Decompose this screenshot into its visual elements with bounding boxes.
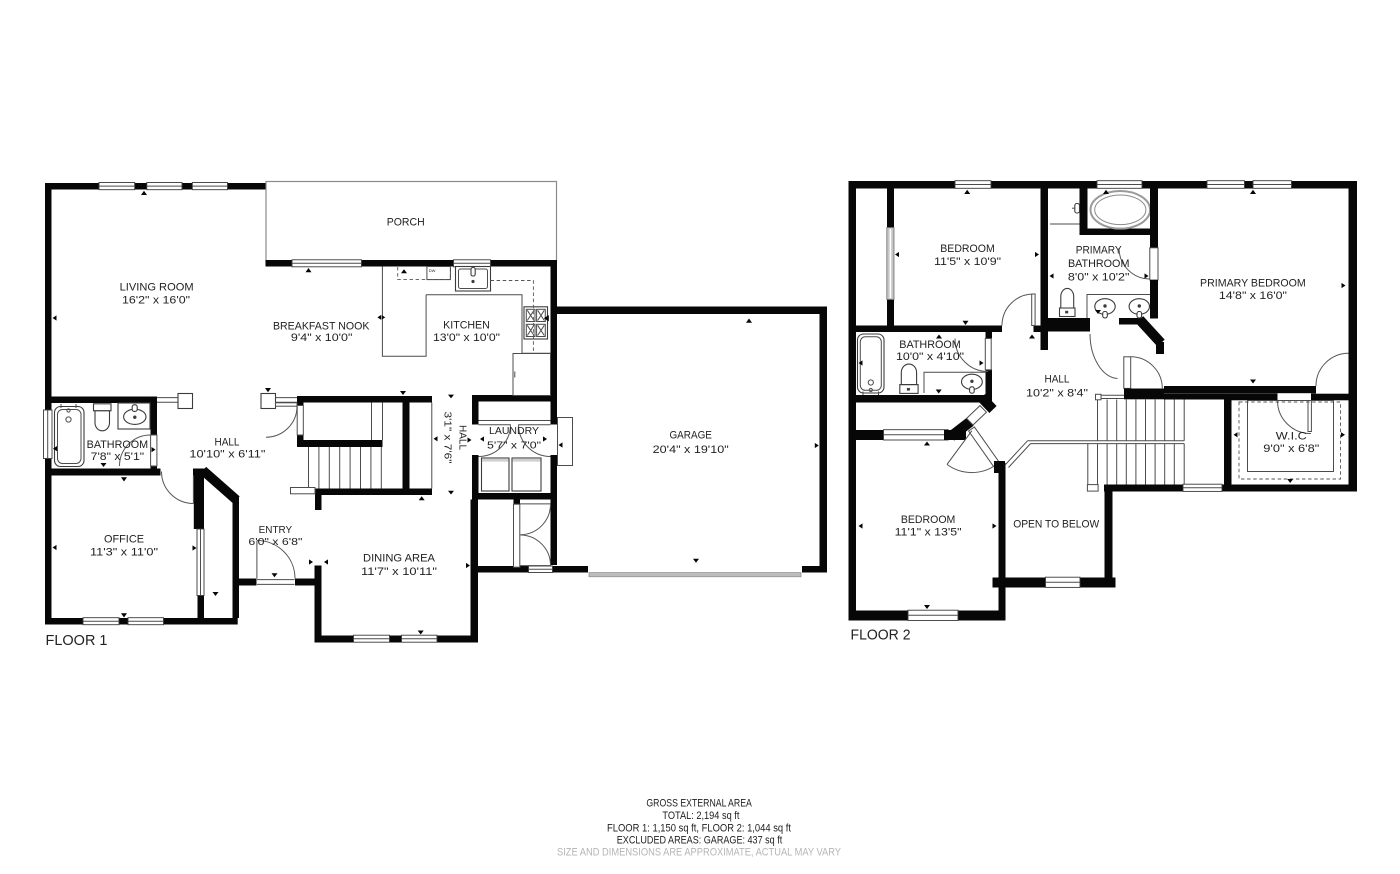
svg-text:OFFICE: OFFICE [104, 533, 144, 545]
svg-text:11'7" x 10'11": 11'7" x 10'11" [361, 566, 437, 578]
svg-text:BATHROOM: BATHROOM [87, 439, 149, 451]
svg-text:EXCLUDED AREAS: GARAGE: 437 sq: EXCLUDED AREAS: GARAGE: 437 sq ft [617, 835, 783, 847]
svg-text:OPEN TO BELOW: OPEN TO BELOW [1013, 518, 1100, 530]
svg-text:ENTRY: ENTRY [259, 525, 293, 536]
svg-text:BREAKFAST NOOK: BREAKFAST NOOK [273, 320, 370, 332]
svg-text:FLOOR 1: 1,150 sq ft, FLOOR 2:: FLOOR 1: 1,150 sq ft, FLOOR 2: 1,044 sq … [607, 822, 791, 834]
svg-text:20'4" x 19'10": 20'4" x 19'10" [653, 444, 729, 456]
svg-text:9'0" x 6'8": 9'0" x 6'8" [1263, 443, 1319, 455]
svg-text:PRIMARY: PRIMARY [1076, 245, 1122, 257]
svg-text:11'3" x 11'0": 11'3" x 11'0" [90, 546, 158, 558]
svg-text:GARAGE: GARAGE [669, 430, 712, 442]
svg-text:5'7" x 7'0": 5'7" x 7'0" [487, 440, 542, 451]
svg-text:W.I.C: W.I.C [1276, 431, 1307, 443]
svg-text:GROSS EXTERNAL AREA: GROSS EXTERNAL AREA [646, 797, 752, 809]
svg-text:BEDROOM: BEDROOM [940, 243, 995, 255]
svg-text:DW: DW [429, 268, 436, 273]
svg-text:11'5" x 10'9": 11'5" x 10'9" [934, 256, 1001, 268]
svg-text:11'1" x 13'5": 11'1" x 13'5" [895, 526, 962, 538]
svg-text:FLOOR 1: FLOOR 1 [46, 632, 108, 649]
svg-text:LIVING ROOM: LIVING ROOM [120, 281, 194, 293]
svg-text:10'2" x 8'4": 10'2" x 8'4" [1026, 387, 1088, 399]
svg-text:FLOOR 2: FLOOR 2 [851, 627, 911, 644]
svg-text:TOTAL: 2,194 sq ft: TOTAL: 2,194 sq ft [662, 810, 739, 822]
svg-text:HALL: HALL [215, 437, 240, 449]
svg-text:BATHROOM: BATHROOM [1068, 258, 1130, 270]
svg-text:7'8" x 5'1": 7'8" x 5'1" [91, 451, 145, 463]
svg-text:LAUNDRY: LAUNDRY [489, 426, 539, 437]
svg-text:10'0" x 4'10": 10'0" x 4'10" [896, 351, 964, 363]
svg-text:8'0" x 10'2": 8'0" x 10'2" [1068, 271, 1130, 283]
svg-text:BATHROOM: BATHROOM [899, 339, 961, 351]
svg-text:PRIMARY BEDROOM: PRIMARY BEDROOM [1200, 278, 1306, 290]
svg-text:PORCH: PORCH [387, 217, 425, 229]
svg-text:HALL: HALL [457, 425, 468, 450]
svg-text:DINING AREA: DINING AREA [363, 553, 436, 565]
svg-text:6'0" x 6'8": 6'0" x 6'8" [248, 537, 303, 548]
svg-text:14'8" x 16'0": 14'8" x 16'0" [1219, 290, 1287, 302]
svg-text:3'1" x 7'6": 3'1" x 7'6" [441, 412, 452, 465]
svg-text:16'2" x 16'0": 16'2" x 16'0" [122, 295, 190, 307]
svg-text:HALL: HALL [1045, 374, 1070, 386]
svg-text:BEDROOM: BEDROOM [901, 514, 956, 526]
svg-text:SIZE AND DIMENSIONS ARE APPROX: SIZE AND DIMENSIONS ARE APPROXIMATE, ACT… [557, 847, 842, 859]
svg-text:9'4" x 10'0": 9'4" x 10'0" [291, 332, 353, 344]
svg-text:10'10" x 6'11": 10'10" x 6'11" [189, 449, 265, 461]
svg-text:13'0" x 10'0": 13'0" x 10'0" [433, 332, 500, 344]
svg-text:KITCHEN: KITCHEN [443, 320, 490, 332]
